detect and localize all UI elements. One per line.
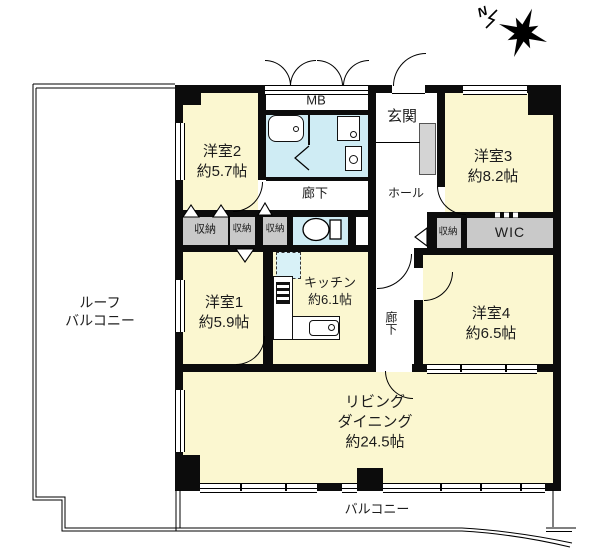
wall-segment xyxy=(368,92,376,365)
window-mullion xyxy=(520,483,522,491)
wall-pier xyxy=(357,468,383,488)
window xyxy=(200,483,317,493)
window-mullion xyxy=(480,483,482,491)
faucet-icon xyxy=(350,131,357,138)
north-arrow-icon xyxy=(486,10,497,28)
living-dining-label: リビング ダイニング 約24.5帖 xyxy=(337,392,412,451)
corridor-upper-label: 廊下 xyxy=(302,184,328,201)
kitchen-label: キッチン 約6.1帖 xyxy=(304,274,356,308)
wic-label: WIC xyxy=(495,223,525,241)
room-name: 洋室2 xyxy=(197,142,248,162)
room-name: バルコニー xyxy=(65,312,135,330)
wall-segment xyxy=(423,248,553,255)
entrance-step-line xyxy=(376,142,420,143)
wall-segment xyxy=(308,115,310,145)
meter-box-door-arc xyxy=(290,60,316,86)
room-name: 洋室1 xyxy=(199,293,250,313)
room-name: キッチン xyxy=(304,274,356,291)
wall-segment xyxy=(412,364,427,372)
window-mullion xyxy=(240,483,242,491)
wall-segment xyxy=(228,217,230,245)
entrance-door-opening xyxy=(392,85,425,94)
room-name: ダイニング xyxy=(337,412,412,432)
entrance-door-arc xyxy=(393,53,426,86)
entrance-label: 玄関 xyxy=(387,107,417,127)
wall-pier xyxy=(175,455,200,490)
room-size: 約5.9帖 xyxy=(199,313,250,333)
bathtub-drain-icon xyxy=(293,126,299,132)
wall-segment xyxy=(255,212,263,252)
wall-segment xyxy=(414,300,423,364)
window xyxy=(175,390,185,452)
hall-label: ホール xyxy=(388,186,424,202)
wall-notch xyxy=(183,92,201,105)
window-mullion xyxy=(285,483,287,491)
room-size: 約6.5帖 xyxy=(466,324,517,344)
compass-north-label: N xyxy=(475,3,490,21)
room-name: ルーフ xyxy=(65,294,135,312)
door-opening xyxy=(414,268,423,300)
storage-label: 収納 xyxy=(265,224,284,237)
bedroom2-label: 洋室2 約5.7帖 xyxy=(197,142,248,182)
meter-box-label: MB xyxy=(306,91,326,108)
meter-box-door-arc xyxy=(265,60,291,86)
window xyxy=(342,483,357,493)
wall-segment xyxy=(437,92,445,187)
washbasin-icon xyxy=(337,116,360,141)
window xyxy=(463,85,527,95)
window-mullion xyxy=(505,364,507,372)
room-size: 約6.1帖 xyxy=(304,291,356,308)
room-size: 約5.7帖 xyxy=(197,162,248,182)
wall-segment xyxy=(263,252,273,364)
balcony-label: バルコニー xyxy=(345,500,410,517)
room-name: リビング xyxy=(337,392,412,412)
toilet-area xyxy=(293,217,348,245)
wall-segment xyxy=(461,218,467,248)
window xyxy=(175,123,185,180)
wall-notch xyxy=(528,92,553,115)
room-size: 約24.5帖 xyxy=(337,432,412,452)
wall-segment xyxy=(537,364,553,372)
bedroom3-label: 洋室3 約8.2帖 xyxy=(468,147,519,187)
wall-segment xyxy=(175,364,376,372)
shoe-cabinet xyxy=(419,123,436,175)
meter-box-door-arc xyxy=(343,60,369,86)
washing-machine-icon xyxy=(345,146,362,171)
wall-segment xyxy=(427,212,437,252)
room-name: 洋室3 xyxy=(468,147,519,167)
washing-machine-door-icon xyxy=(349,155,358,164)
room-size: 約8.2帖 xyxy=(468,167,519,187)
stove-icon xyxy=(276,282,290,304)
bedroom1-label: 洋室1 約5.9帖 xyxy=(199,293,250,333)
sink-icon xyxy=(309,320,339,336)
bathtub-icon xyxy=(268,115,304,142)
storage-label: 収納 xyxy=(194,223,216,238)
faucet-icon xyxy=(328,324,335,331)
wall-segment xyxy=(258,92,266,180)
window-mullion xyxy=(440,483,442,491)
room-name: 洋室4 xyxy=(466,304,517,324)
wall-segment xyxy=(175,245,372,252)
bedroom4-label: 洋室4 約6.5帖 xyxy=(466,304,517,344)
window xyxy=(175,280,185,332)
roof-balcony-label: ルーフ バルコニー xyxy=(65,294,135,331)
window-mullion xyxy=(460,364,462,372)
wall-segment xyxy=(427,212,553,218)
compass-rose xyxy=(486,9,547,57)
wall-segment xyxy=(414,248,423,268)
wall-segment xyxy=(348,210,356,252)
wall-segment xyxy=(265,177,368,181)
corridor-side-label: 廊下 xyxy=(382,311,398,335)
storage-label: 収納 xyxy=(232,224,251,237)
meter-box-door-arc xyxy=(317,60,343,86)
wall-segment xyxy=(553,85,561,491)
sliding-door-opening xyxy=(427,364,537,374)
storage-label: 収納 xyxy=(438,227,457,240)
floor-plan: N MB 洋室2 約5.7帖 洋室3 約8.2帖 玄関 ホール 廊下 廊下 収納… xyxy=(0,0,605,559)
refrigerator-space xyxy=(276,252,301,279)
wall-segment xyxy=(287,212,293,252)
wall-segment xyxy=(175,210,372,217)
